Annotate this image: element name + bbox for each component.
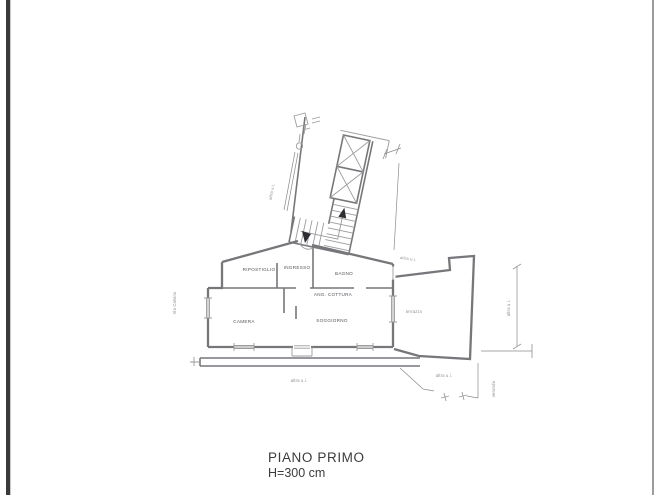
room-label-terrazzo: terrazzo <box>406 309 423 314</box>
terrazzo-walls <box>393 256 474 359</box>
window-left-wall <box>204 298 212 318</box>
balcony-walls <box>200 358 420 366</box>
floor-plan-svg: RIPOSTIGLIO INGRESSO BAGNO ANG. COTTURA … <box>0 0 660 495</box>
annotation-street-name: Via Calvino <box>172 291 177 314</box>
annotation-altra-ui-bottom-right: altra u.i. <box>436 373 453 378</box>
title-floor: PIANO PRIMO <box>268 450 365 465</box>
wall-top-left-diagonal <box>222 241 298 262</box>
boundary-thin-lines <box>284 152 298 211</box>
room-label-ingresso: INGRESSO <box>284 265 311 270</box>
window-soggiorno-bottom <box>357 343 373 351</box>
wall-bagno-top <box>312 245 393 264</box>
stair-flight-upper <box>324 204 358 250</box>
window-right-wall <box>389 296 397 322</box>
title-height: H=300 cm <box>268 466 325 480</box>
stairwell-right-wall <box>349 141 373 254</box>
room-label-camera: CAMERA <box>233 319 255 324</box>
bottom-right-boundaries <box>400 363 478 401</box>
room-label-ang-cottura: ANG. COTTURA <box>314 292 353 297</box>
room-label-soggiorno: SOGGIORNO <box>316 318 348 323</box>
french-door-recess <box>292 345 312 356</box>
chimney-detail <box>294 113 320 149</box>
floorplan-page: RIPOSTIGLIO INGRESSO BAGNO ANG. COTTURA … <box>0 0 660 495</box>
annotation-altra-ui-right: altra u.i. <box>506 300 511 317</box>
annotation-veranda: veranda <box>491 380 496 397</box>
room-label-ripostiglio: RIPOSTIGLIO <box>243 267 276 272</box>
room-label-bagno: BAGNO <box>335 271 353 276</box>
annotation-altra-ui-below-balcony: altra u.i. <box>291 378 308 383</box>
boundary-line-right-of-stairs <box>394 163 399 250</box>
balcony-left-ticks <box>190 357 199 366</box>
staircase-treads <box>295 198 358 254</box>
elevator-shaft-x-icon <box>330 135 370 203</box>
annotation-altra-ui-near-stairs: altra u.i. <box>400 255 417 262</box>
annotation-altra-ui-upper-left: altra u.i. <box>267 183 275 200</box>
door-soggiorno-terrazzo <box>391 266 396 280</box>
stair-direction-arrow-icon <box>338 207 348 218</box>
window-camera-bottom <box>234 343 254 351</box>
wall-camera-soggiorno <box>284 288 296 319</box>
corridor-left-wall <box>291 117 305 232</box>
